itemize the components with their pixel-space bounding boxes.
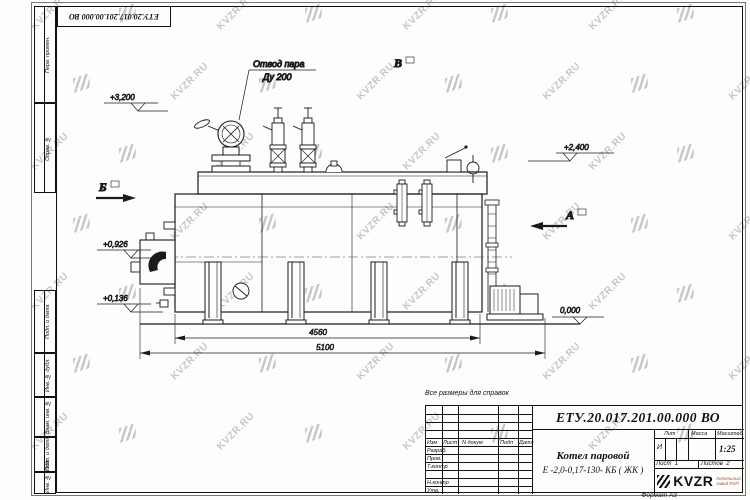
stat-header-massa: Масса (691, 431, 707, 437)
scale-value: 1:25 (719, 444, 736, 454)
col-header-doc: N докум (462, 440, 483, 446)
margin-stamp-podp-data-1: Подп. и дата (34, 290, 56, 353)
company-logo: KVZR Котельный завод РЭП (655, 469, 743, 493)
row-label-prov: Пров. (427, 456, 442, 462)
kvzr-logo-caption: Котельный завод РЭП (716, 476, 740, 487)
col-header-list: Лист (443, 440, 457, 446)
sheet-value: 1 (675, 461, 678, 467)
product-name: Котел паровой Е -2,0-0,17-130- КБ ( ЖК ) (532, 430, 654, 494)
product-name-line2: Е -2,0-0,17-130- КБ ( ЖК ) (543, 465, 644, 475)
stat-header-masshtab: Масштаб (717, 431, 743, 437)
corner-stamp: ЕТУ.20.017.201.00.000 ВО (57, 6, 171, 27)
margin-stamp-sprav-no: Справ. № (34, 103, 56, 193)
kvzr-logo-mark-icon (657, 475, 670, 488)
row-label-tkontr: Т.контр (427, 464, 448, 470)
lit-value: И (657, 444, 662, 451)
corner-doc-number: ЕТУ.20.017.201.00.000 ВО (69, 12, 159, 21)
col-header-izm: Изм (427, 440, 437, 446)
row-label-razrab: Разраб. (427, 448, 447, 454)
format-note: Формат А3 (575, 492, 743, 499)
drawing-sheet: KVZR.RUKVZR.RUKVZR.RUKVZR.RUKVZR.RUKVZR.… (0, 0, 750, 500)
margin-stamp-vzam-inv: Взам. инв. № (34, 397, 56, 437)
col-header-podp: Подп (500, 440, 513, 446)
margin-stamp-inv-dubl: Инв. № дубл. (34, 353, 56, 397)
sheets-label: Листов 2 (701, 461, 730, 467)
row-label-nkontr: Н.контр (427, 480, 449, 486)
product-name-line1: Котел паровой (557, 450, 630, 462)
kvzr-logo-text: KVZR (673, 473, 713, 489)
reference-note: Все размеры для справок (425, 390, 509, 397)
stat-header-lit: Лит (664, 431, 675, 437)
sheets-value: 2 (726, 461, 729, 467)
sheet-label: Лист 1 (656, 461, 678, 467)
margin-stamp-perv-primen: Перв. примен. (34, 6, 56, 103)
row-label-utv: Утв. (427, 488, 440, 494)
title-block: Изм Лист N докум Подп Дата Разраб. Пров.… (425, 405, 743, 493)
title-doc-number: ЕТУ.20.017.201.00.000 ВО (532, 406, 744, 430)
margin-stamp-inv-podl: Инв. № подл. (34, 472, 56, 494)
